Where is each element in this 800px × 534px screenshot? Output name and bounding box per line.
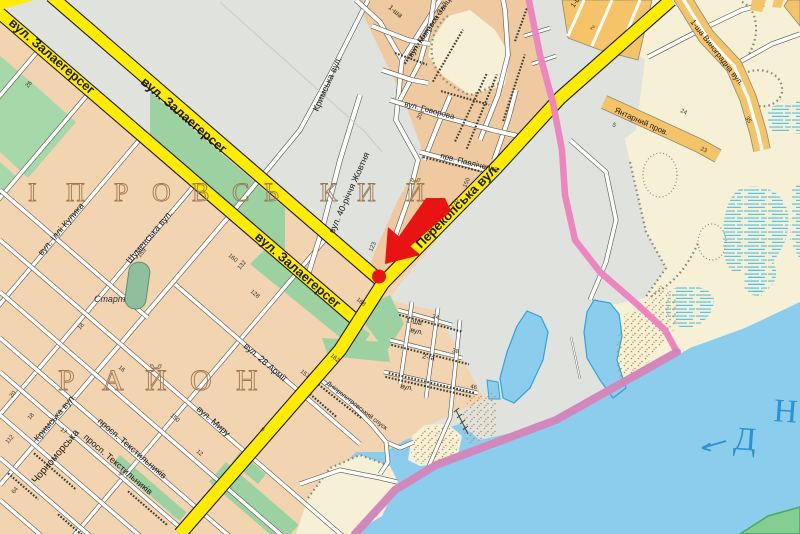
svg-text:Д: Д <box>732 421 757 458</box>
svg-text:Н: Н <box>772 393 798 431</box>
svg-text:Н: Н <box>236 364 258 397</box>
svg-text:О: О <box>152 178 171 207</box>
svg-text:І: І <box>28 178 37 207</box>
svg-text:Й: Й <box>145 364 167 397</box>
svg-text:Р: Р <box>114 178 128 207</box>
svg-text:Р: Р <box>58 364 75 397</box>
svg-text:Старт: Старт <box>94 294 126 304</box>
svg-text:Й: Й <box>406 178 425 207</box>
svg-text:К: К <box>320 178 338 207</box>
svg-text:С: С <box>232 178 249 207</box>
svg-text:О: О <box>190 364 212 397</box>
svg-text:И: И <box>357 178 376 207</box>
svg-text:Ь: Ь <box>264 178 279 207</box>
svg-text:В: В <box>192 178 209 207</box>
